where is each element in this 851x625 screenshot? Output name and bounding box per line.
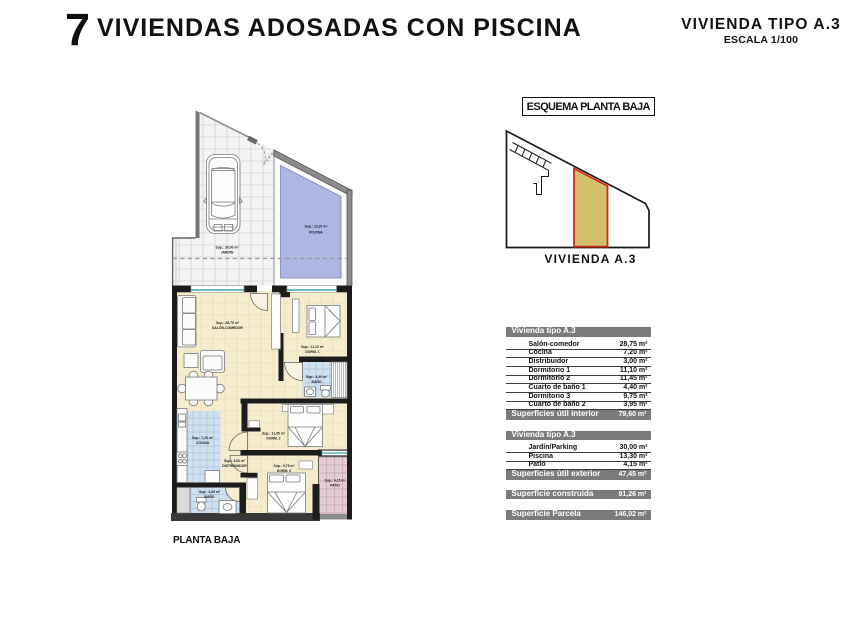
svg-text:Sup.: 9,75 m²: Sup.: 9,75 m² [273, 464, 295, 468]
svg-text:BAÑO: BAÑO [205, 494, 215, 499]
svg-text:COCINA: COCINA [196, 441, 210, 445]
svg-text:Sup.: 4,40 m²: Sup.: 4,40 m² [306, 375, 328, 379]
svg-text:DORM. 3: DORM. 3 [277, 469, 291, 473]
svg-text:PATIO: PATIO [330, 484, 340, 488]
svg-text:Sup.: 4,15 m²: Sup.: 4,15 m² [324, 479, 346, 483]
svg-text:Sup.: 13,30 m²: Sup.: 13,30 m² [305, 225, 329, 229]
svg-text:PISCINA: PISCINA [309, 231, 323, 235]
svg-text:SALÓN-COMEDOR: SALÓN-COMEDOR [212, 325, 243, 330]
svg-text:Sup.: 28,75 m²: Sup.: 28,75 m² [216, 321, 240, 325]
svg-text:DORM. 1: DORM. 1 [305, 350, 319, 354]
svg-text:Sup.: 3,45 m²: Sup.: 3,45 m² [199, 490, 221, 494]
svg-text:Sup.: 11,10 m²: Sup.: 11,10 m² [301, 345, 325, 349]
svg-text:DISTRIBUIDOR: DISTRIBUIDOR [222, 464, 247, 468]
svg-text:Sup.: 30,00 m²: Sup.: 30,00 m² [216, 246, 240, 250]
svg-text:JARDIN: JARDIN [221, 251, 234, 255]
svg-text:Sup.: 11,45 m²: Sup.: 11,45 m² [262, 432, 286, 436]
svg-text:Sup.: 3,00 m²: Sup.: 3,00 m² [224, 459, 246, 463]
svg-text:BAÑO: BAÑO [312, 379, 322, 384]
svg-text:DORM. 2: DORM. 2 [266, 437, 280, 441]
svg-text:Sup.: 7,20 m²: Sup.: 7,20 m² [192, 436, 214, 440]
